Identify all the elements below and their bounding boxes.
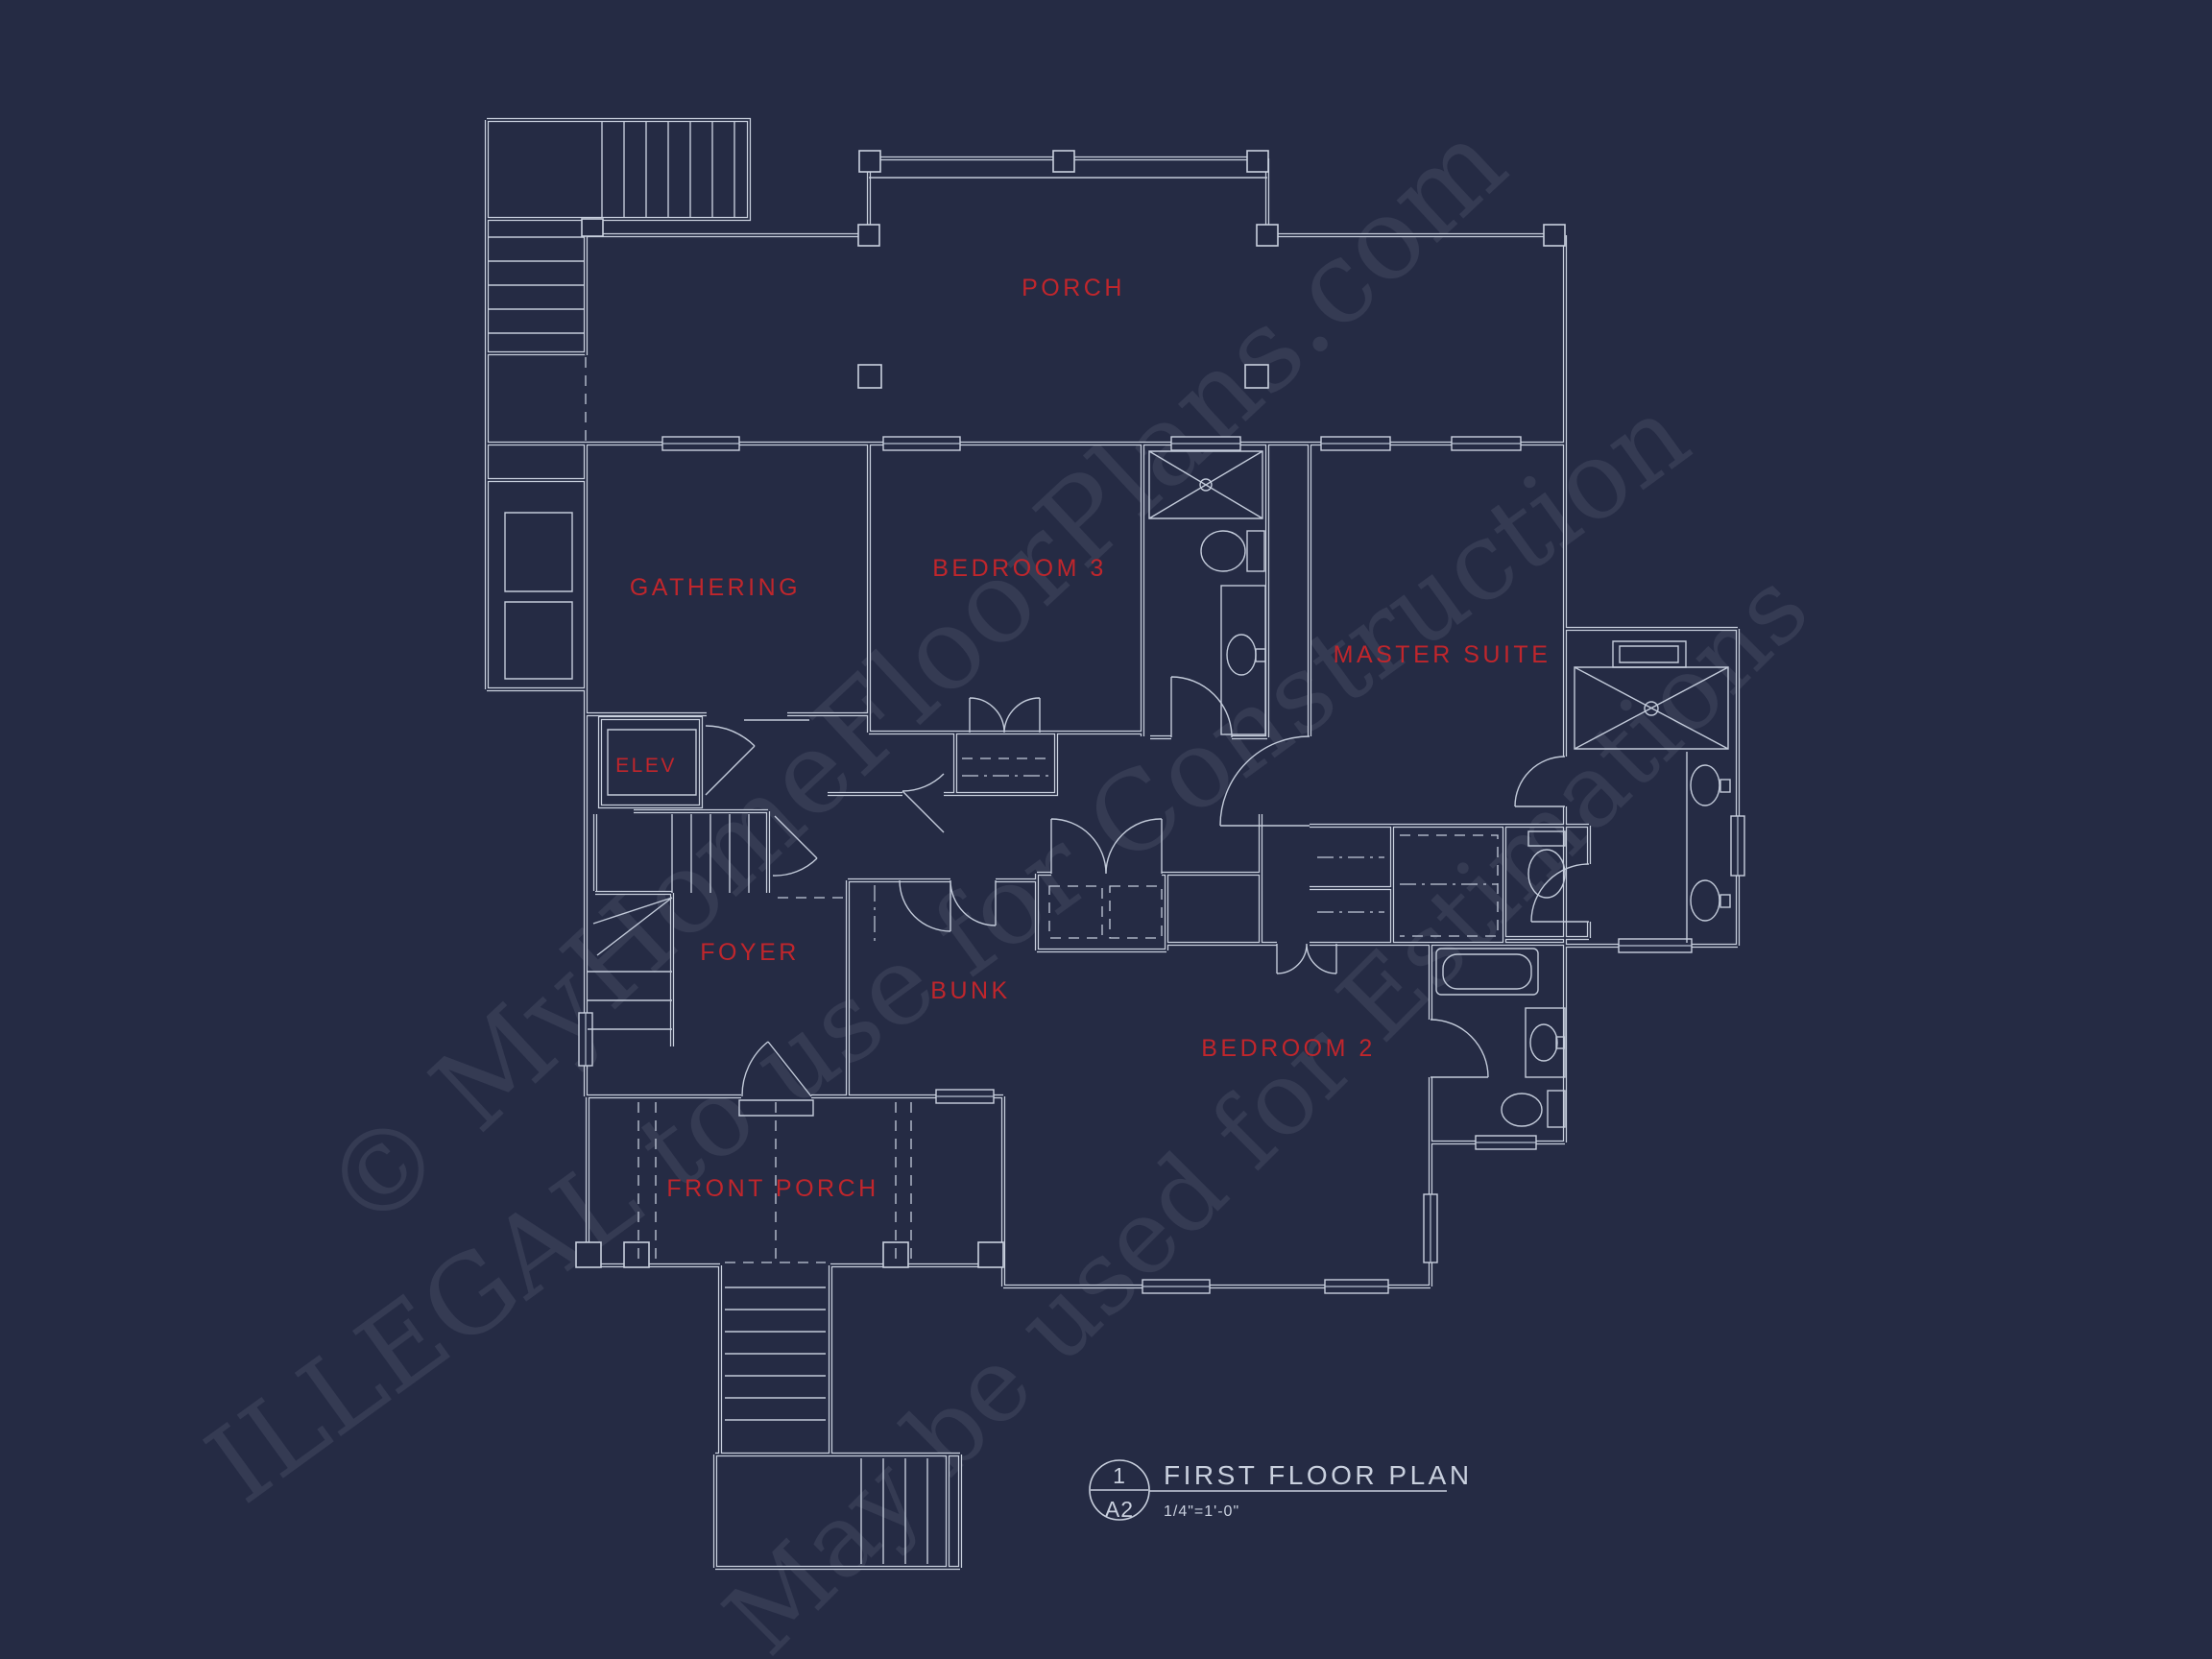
post <box>1247 151 1268 172</box>
blueprint-page: © MyHomeFloorPlans.com ILLEGAL to use fo… <box>0 0 2212 1659</box>
room-label-gathering: GATHERING <box>630 574 801 601</box>
room-label-porch: PORCH <box>1022 275 1125 301</box>
porch-post <box>624 1242 649 1267</box>
deck-post <box>582 219 603 236</box>
sheet-number: A2 <box>1105 1497 1134 1522</box>
porch-post <box>576 1242 601 1267</box>
porch-post <box>978 1242 1003 1267</box>
room-label-foyer: FOYER <box>700 939 800 966</box>
room-label-elev: ELEV <box>615 755 677 777</box>
room-label-bedroom-2: BEDROOM 2 <box>1201 1035 1376 1062</box>
post <box>859 151 880 172</box>
post <box>858 225 879 246</box>
drawing-title: FIRST FLOOR PLAN <box>1164 1460 1473 1490</box>
freestanding-post <box>858 365 881 388</box>
room-label-bunk: BUNK <box>930 977 1010 1004</box>
room-label-front-porch: FRONT PORCH <box>666 1175 878 1202</box>
freestanding-post <box>1245 365 1268 388</box>
post <box>1544 225 1565 246</box>
post <box>1053 151 1074 172</box>
room-label-master-suite: MASTER SUITE <box>1334 641 1551 668</box>
floor-plan-drawing: © MyHomeFloorPlans.com ILLEGAL to use fo… <box>0 0 2212 1659</box>
drawing-scale: 1/4"=1'-0" <box>1164 1503 1239 1520</box>
room-label-bedroom-3: BEDROOM 3 <box>932 555 1107 582</box>
post <box>1257 225 1278 246</box>
detail-number: 1 <box>1113 1463 1126 1488</box>
